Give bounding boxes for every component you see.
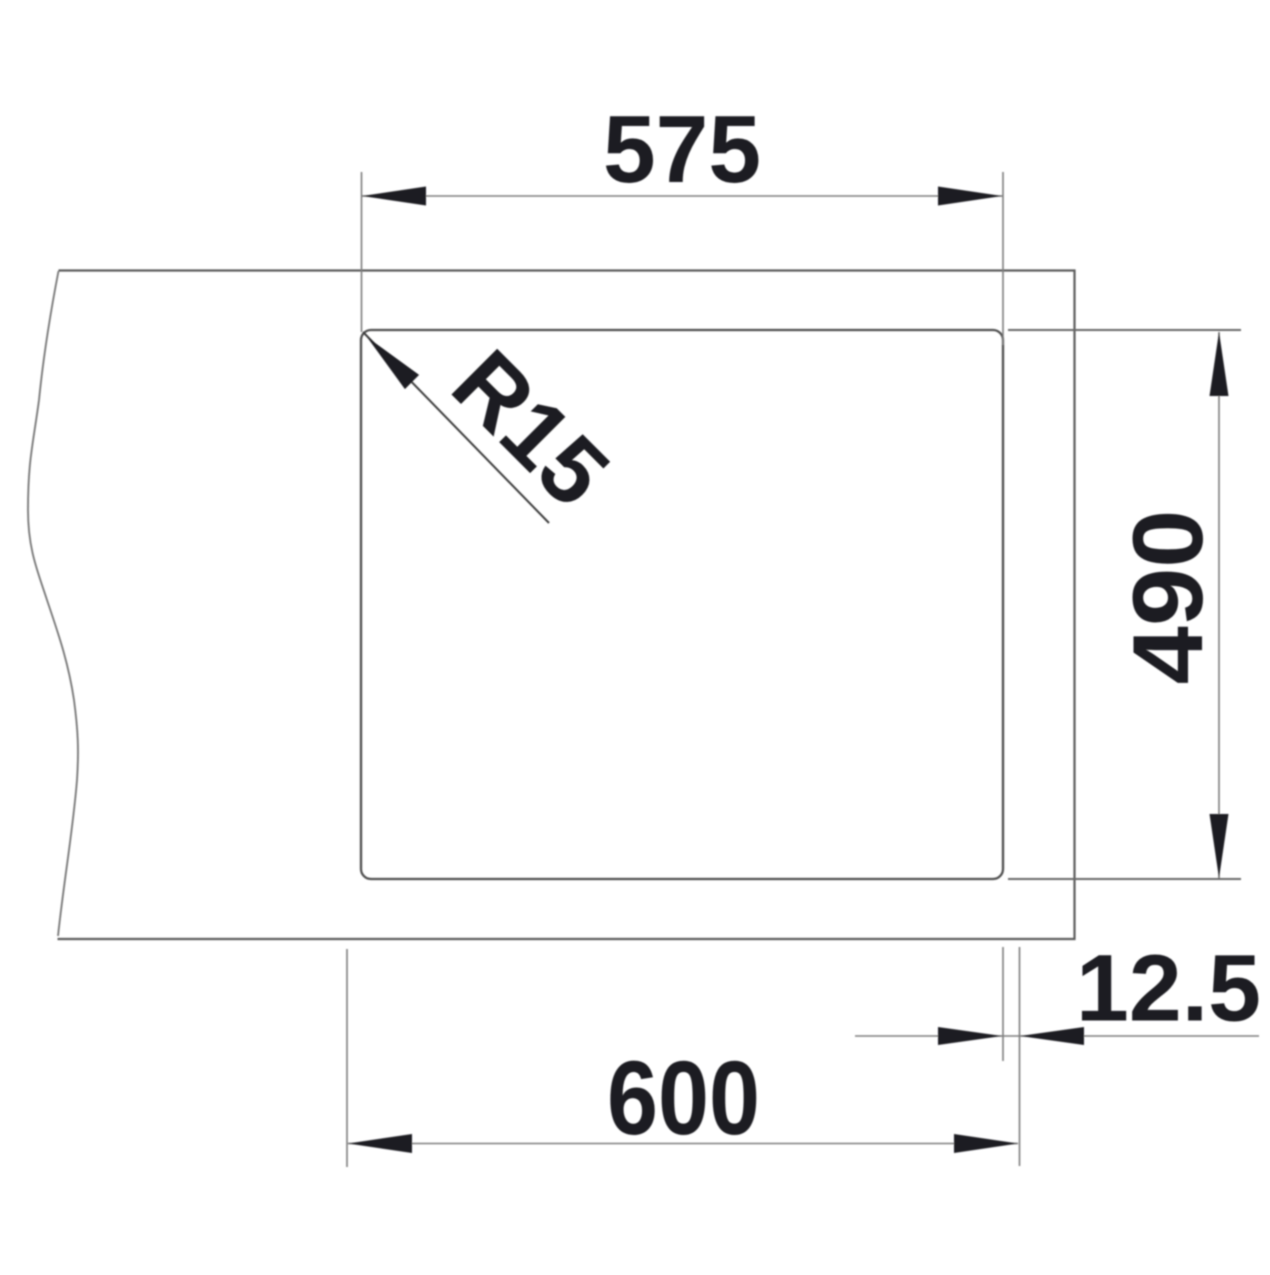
- svg-text:575: 575: [603, 96, 761, 203]
- svg-text:490: 490: [1112, 510, 1223, 685]
- svg-text:R15: R15: [433, 330, 629, 526]
- svg-text:600: 600: [607, 1040, 760, 1157]
- svg-text:12.5: 12.5: [1076, 936, 1261, 1042]
